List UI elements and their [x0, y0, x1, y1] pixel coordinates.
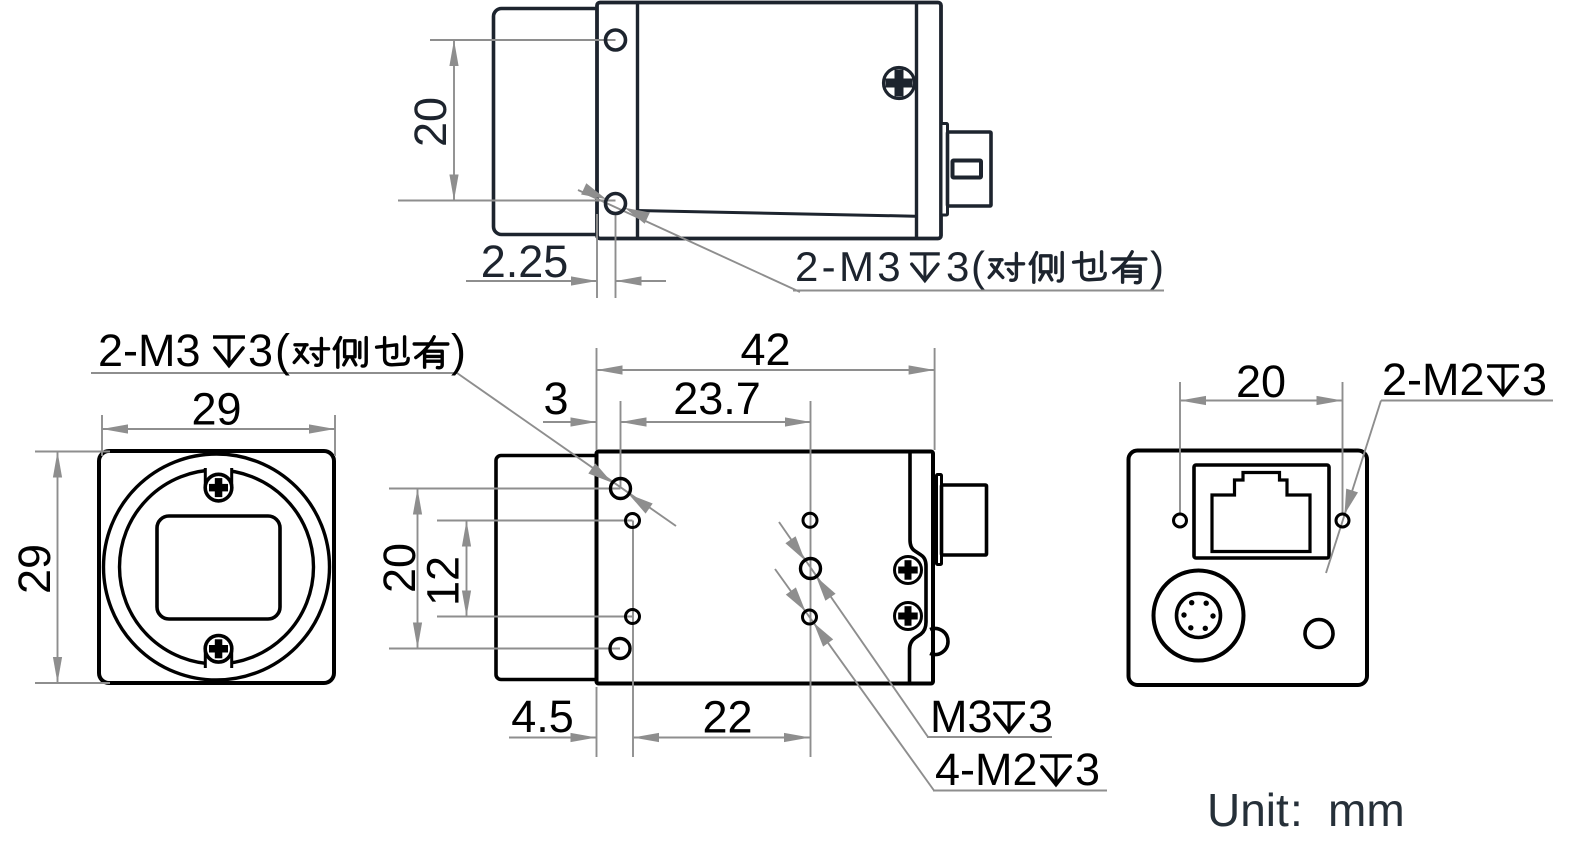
svg-text:): ): [451, 325, 466, 376]
svg-text:23.7: 23.7: [673, 373, 761, 424]
svg-text:22: 22: [702, 692, 752, 743]
svg-text:mm: mm: [1328, 784, 1405, 836]
svg-text:(: (: [971, 243, 985, 290]
svg-text:): ): [1150, 243, 1164, 290]
svg-text:20: 20: [405, 97, 456, 147]
svg-text:4.5: 4.5: [511, 691, 574, 742]
svg-text:42: 42: [740, 324, 790, 375]
svg-text:3: 3: [543, 373, 568, 424]
svg-text:3: 3: [248, 325, 273, 376]
svg-text:12: 12: [418, 556, 469, 606]
svg-text:3: 3: [1028, 691, 1053, 742]
svg-text:3: 3: [1522, 354, 1547, 405]
svg-text:29: 29: [9, 544, 60, 594]
svg-text:2-M2: 2-M2: [1382, 354, 1485, 405]
svg-text:2-M3: 2-M3: [795, 243, 904, 290]
svg-text:M3: M3: [930, 691, 993, 742]
svg-text::: :: [1290, 784, 1303, 836]
svg-text:3: 3: [1075, 744, 1100, 795]
svg-text:3: 3: [946, 243, 969, 290]
svg-text:2-M3: 2-M3: [98, 325, 201, 376]
svg-text:29: 29: [191, 384, 241, 435]
svg-text:Unit: Unit: [1207, 784, 1289, 836]
svg-text:2.25: 2.25: [481, 236, 569, 287]
svg-text:4-M2: 4-M2: [935, 744, 1038, 795]
svg-text:(: (: [275, 325, 290, 376]
svg-text:20: 20: [1236, 356, 1286, 407]
